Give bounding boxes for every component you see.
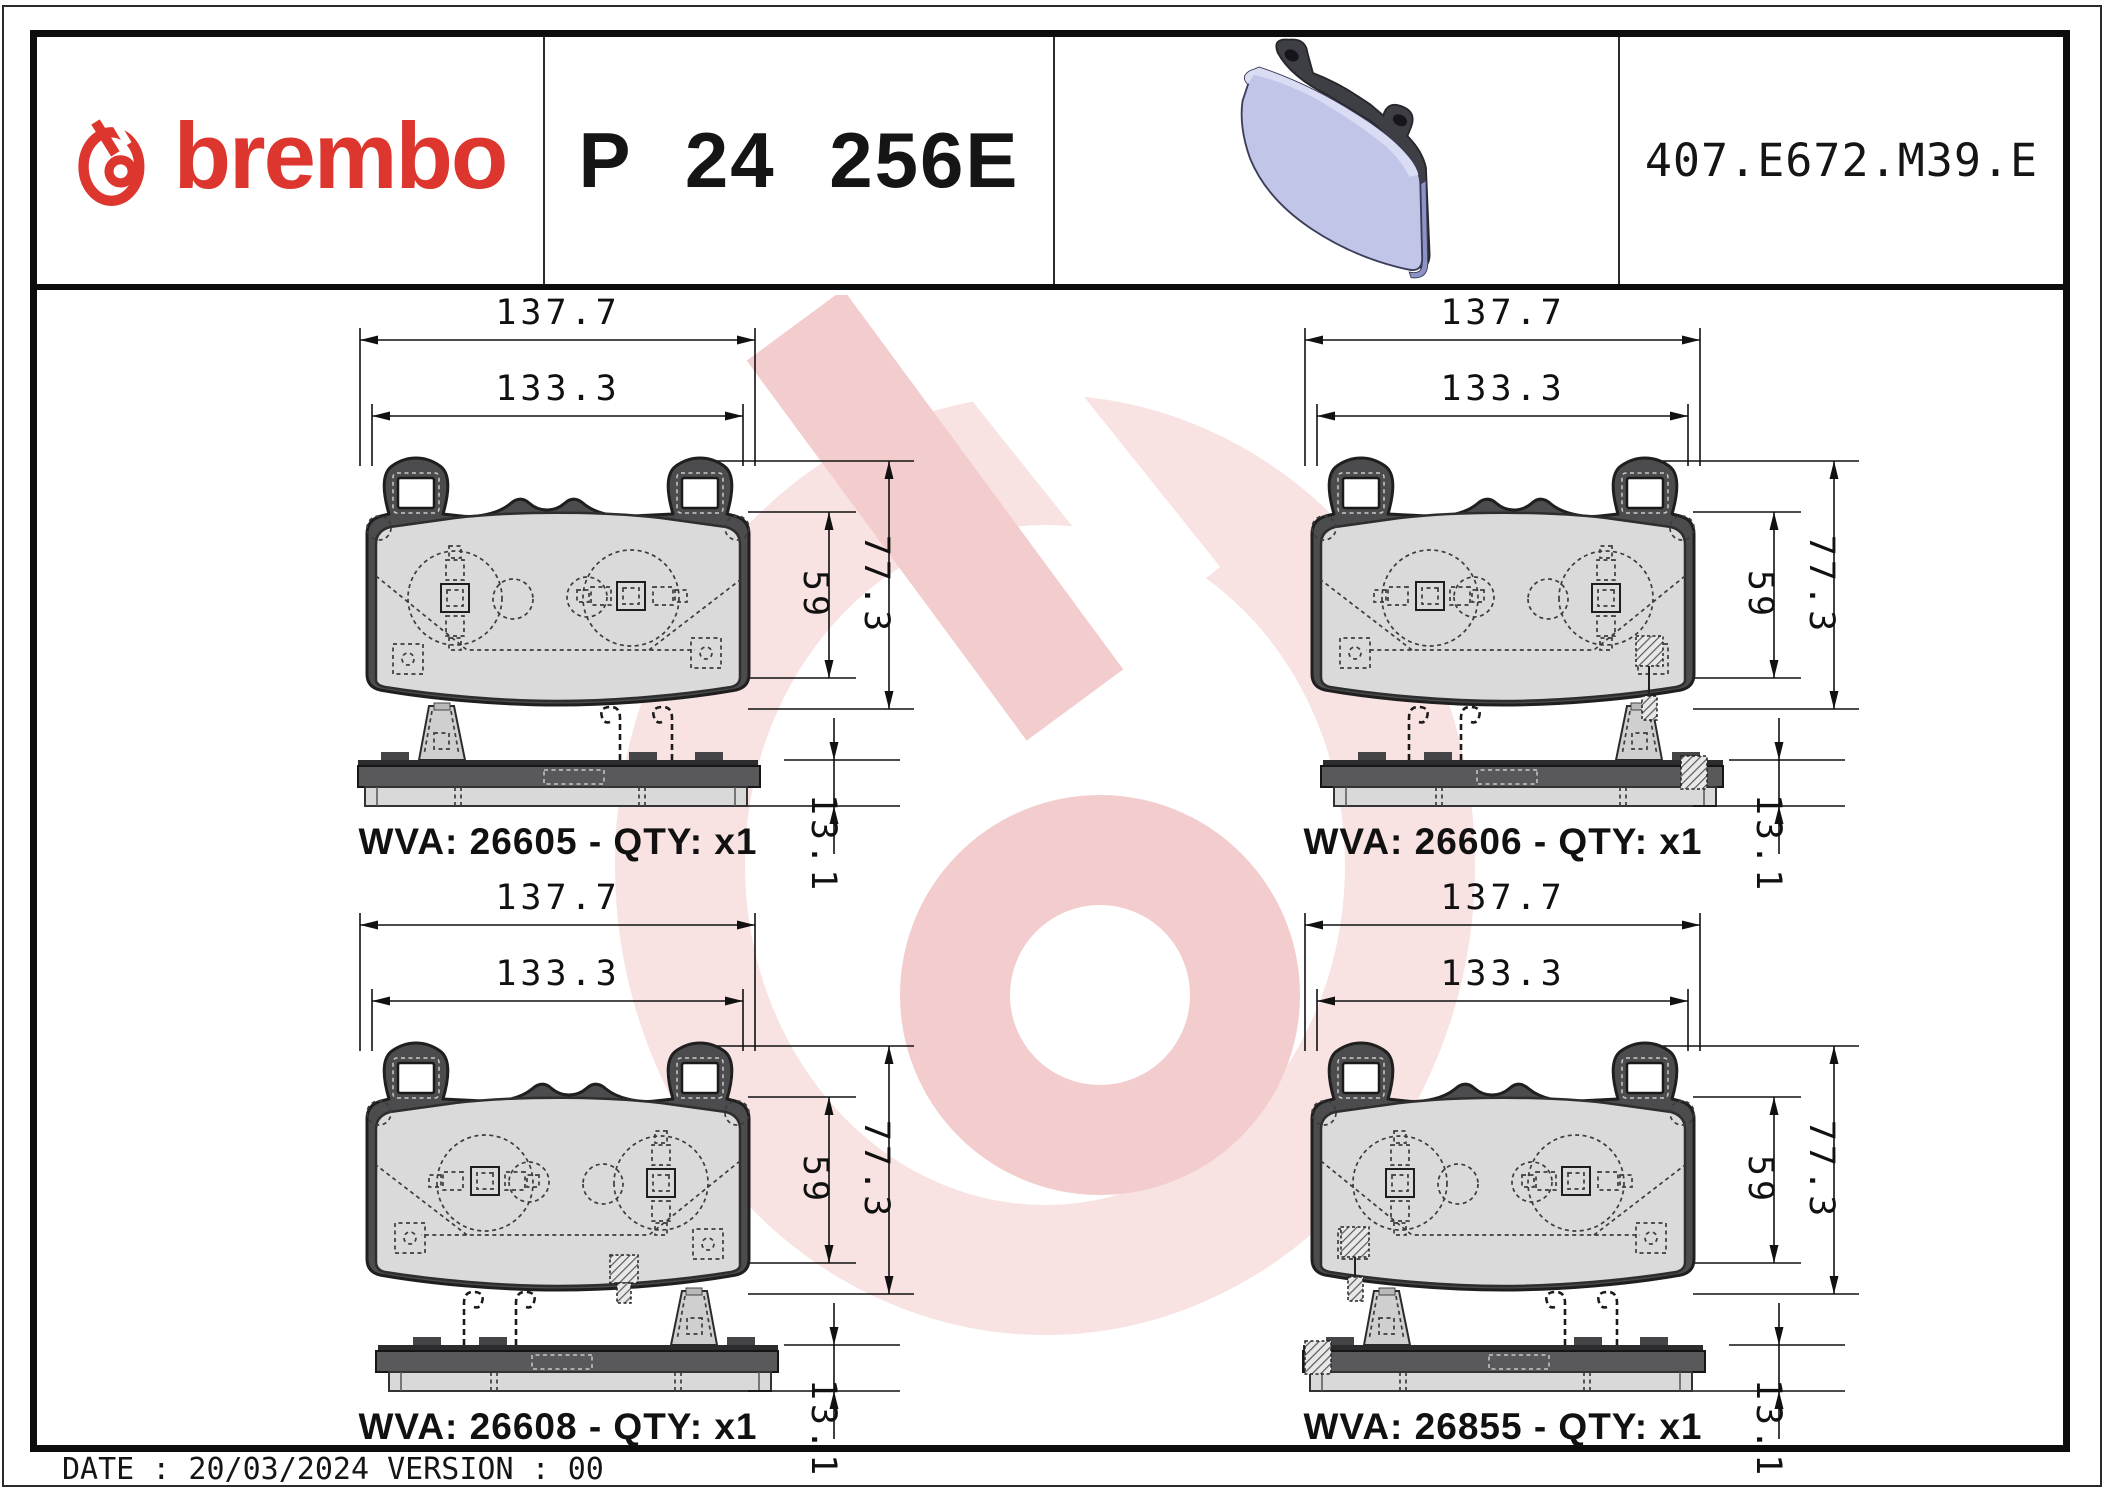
wva-label: WVA: 26855 - QTY: x1 [1303,1406,1702,1447]
title-block: brembo P 24 256E 407.E672.M39.E [37,37,2063,290]
pad-side-view [358,703,760,806]
dim-inner-width-lines [1317,404,1688,466]
dim-thickness: 13.1 [803,1379,843,1475]
wva-label: WVA: 26605 - QTY: x1 [358,821,757,862]
pad-side-view [1303,1288,1705,1391]
wear-sensor-side-right [1681,756,1707,789]
dim-pad-height: 59 [795,570,835,620]
pad-front-view [1312,458,1694,705]
pad-front-view [367,458,749,705]
wva-label: WVA: 26606 - QTY: x1 [1303,821,1702,862]
dim-total-height: 77.3 [1801,1120,1841,1220]
brembo-logo-mark-icon [74,109,156,213]
pad-drawing-wva-26605: 137.7 133.3 [348,298,918,890]
dim-outer-width: 137.7 [495,298,620,333]
pad-side-view [376,1288,778,1391]
pad-front-view [1312,1043,1694,1290]
dim-thickness: 13.1 [1748,1379,1788,1475]
dim-thickness: 13.1 [1748,794,1788,890]
part-number-cell: P 24 256E [545,37,1055,284]
dim-inner-width: 133.3 [1440,369,1565,409]
brand-cell: brembo [37,37,545,284]
wva-label: WVA: 26608 - QTY: x1 [358,1406,757,1447]
dim-total-height: 77.3 [856,535,896,635]
wear-sensor-mid [610,1255,638,1303]
dim-pad-height: 59 [1740,1155,1780,1205]
brake-pad-3d-image [1187,36,1487,286]
dim-inner-width: 133.3 [495,954,620,994]
dim-thickness: 13.1 [803,794,843,890]
dim-inner-width-lines [372,404,743,466]
part-number: P 24 256E [579,115,1020,206]
dim-total-height: 77.3 [1801,535,1841,635]
catalog-code: 407.E672.M39.E [1645,134,2038,187]
catalog-code-cell: 407.E672.M39.E [1620,37,2063,284]
dim-outer-width: 137.7 [1440,298,1565,333]
pad-front-view [367,1043,749,1290]
pad-side-view [1321,703,1723,806]
dim-pad-height: 59 [795,1155,835,1205]
product-image-cell [1055,37,1620,284]
pad-drawing-wva-26855: 137.7 133.3 [1293,883,1863,1475]
dim-inner-width: 133.3 [495,369,620,409]
dim-inner-width-lines [372,989,743,1051]
brand-wordmark: brembo [174,109,507,213]
pad-drawing-wva-26606: 137.7 133.3 [1293,298,1863,890]
dim-inner-width-lines [1317,989,1688,1051]
dim-outer-width: 137.7 [1440,883,1565,918]
dim-pad-height: 59 [1740,570,1780,620]
wear-sensor-side-left [1305,1341,1331,1374]
brembo-logo: brembo [74,109,507,213]
dim-outer-width: 137.7 [495,883,620,918]
dim-total-height: 77.3 [856,1120,896,1220]
pad-drawing-wva-26608: 137.7 133.3 [348,883,918,1475]
dim-inner-width: 133.3 [1440,954,1565,994]
